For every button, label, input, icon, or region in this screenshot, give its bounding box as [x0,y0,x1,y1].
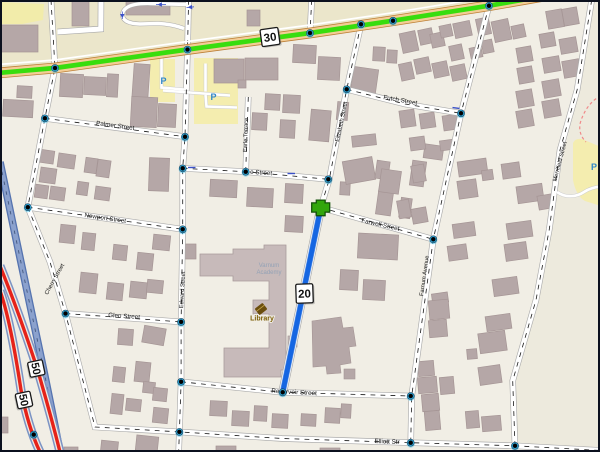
svg-text:30: 30 [263,31,277,45]
svg-text:20: 20 [298,288,311,300]
svg-text:Varnum: Varnum [259,263,280,269]
svg-text:P: P [591,162,597,172]
svg-text:Earle Terrace: Earle Terrace [243,118,250,153]
svg-text:Elliott Str: Elliott Str [374,438,399,446]
svg-text:Library: Library [250,316,274,323]
svg-text:P: P [160,76,166,86]
svg-text:50: 50 [28,361,42,375]
svg-text:Academy: Academy [256,270,281,276]
svg-text:P: P [210,92,216,102]
svg-text:50: 50 [16,393,30,407]
